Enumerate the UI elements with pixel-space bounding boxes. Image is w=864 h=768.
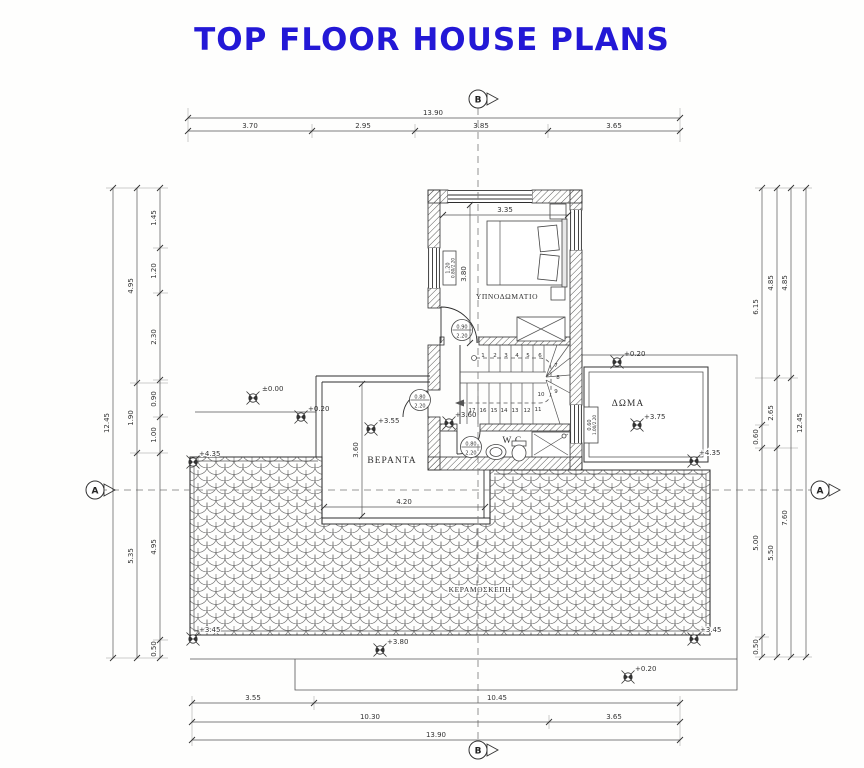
- dim-label: 13.90: [423, 109, 443, 117]
- stair-step-number: 13: [512, 408, 519, 414]
- level-label: +4.35: [699, 449, 720, 457]
- stair-step-number: 11: [535, 407, 542, 413]
- svg-text:A: A: [92, 487, 99, 497]
- dim-label: 1.00: [150, 427, 158, 443]
- dim-bottom: 3.55 10.45 10.30 3.65 13.90: [189, 694, 683, 743]
- window-label: 0.80/2.20: [451, 258, 456, 278]
- dim-label: 3.65: [606, 122, 622, 130]
- level-label: +4.35: [199, 450, 220, 458]
- dim-label: 0.90: [150, 391, 158, 407]
- stair-step-number: 15: [491, 408, 498, 414]
- nightstand: [551, 287, 565, 300]
- window-label: 1.00/2.20: [592, 415, 597, 435]
- dim-label: 4.20: [396, 498, 412, 506]
- bedroom-furniture: ΥΠΝΟΔΩΜΑΤΙΟ: [476, 204, 567, 341]
- level-label: +3.80: [387, 638, 408, 646]
- stair-step-number: 9: [554, 389, 558, 395]
- door-label: 0.80: [414, 395, 425, 401]
- stair-step-number: 3: [504, 353, 508, 359]
- dim-label: 3.60: [352, 442, 360, 458]
- level-label: +3.45: [199, 626, 220, 634]
- svg-text:B: B: [475, 96, 482, 106]
- stair-step-number: 5: [526, 353, 530, 359]
- svg-text:B: B: [475, 747, 482, 757]
- stair-step-number: 6: [538, 353, 542, 359]
- door-label: 2.20: [465, 451, 476, 457]
- section-marker-b-bottom: B: [469, 741, 498, 759]
- dim-top: 13.90 3.70 2.95 3.85 3.65: [185, 109, 683, 134]
- bedroom-left-window: 1.20 0.80/2.20: [428, 248, 456, 288]
- dim-label: 1.20: [150, 263, 158, 279]
- dim-label: 6.15: [752, 299, 760, 315]
- door-label: 0.90: [456, 325, 467, 331]
- dim-label: 1.90: [127, 410, 135, 426]
- dim-label: 3.65: [606, 713, 622, 721]
- nightstand: [550, 204, 566, 219]
- section-marker-a-left: A: [86, 481, 115, 499]
- roof-outline: [190, 457, 710, 635]
- veranda-door: 0.80 2.20: [403, 390, 431, 418]
- section-marker-b-top: B: [469, 90, 498, 108]
- dim-label: 3.80: [460, 266, 468, 282]
- level-label: +3.75: [644, 413, 665, 421]
- svg-text:A: A: [817, 487, 824, 497]
- stair-step-number: 1: [481, 353, 485, 359]
- dim-label: 4.85: [781, 275, 789, 291]
- room-label-roof-terrace: ΔΩΜΑ: [612, 399, 644, 409]
- level-label: ±0.00: [262, 385, 283, 393]
- section-marker-a-right: A: [811, 481, 840, 499]
- dim-label: 10.45: [487, 694, 507, 702]
- floor-plan-drawing: ΚΕΡΑΜΟΣΚΕΠΗ ΒΕΡΑΝΤΑ ΔΩΜΑ: [0, 0, 864, 768]
- dim-label: 4.95: [150, 539, 158, 555]
- pillow: [538, 254, 560, 281]
- dim-label: 3.55: [245, 694, 261, 702]
- dim-label: 13.90: [426, 731, 446, 739]
- shower: [532, 432, 570, 457]
- tiled-roof: ΚΕΡΑΜΟΣΚΕΠΗ: [190, 457, 710, 635]
- door-label: 2.20: [414, 404, 425, 410]
- dim-label: 5.35: [127, 548, 135, 564]
- stair-step-number: 8: [556, 375, 560, 381]
- level-label: +3.60: [455, 411, 476, 419]
- dim-label: 12.45: [103, 413, 111, 433]
- bedroom-door: 0.90 2.20: [441, 307, 477, 343]
- stair-step-number: 7: [554, 363, 558, 369]
- dim-label: 2.65: [767, 405, 775, 421]
- dim-label: 5.50: [767, 545, 775, 561]
- dim-label: 7.60: [781, 510, 789, 526]
- dim-label: 4.85: [767, 275, 775, 291]
- level-label: +3.45: [700, 626, 721, 634]
- dim-label: 12.45: [796, 413, 804, 433]
- stair-step-number: 14: [501, 408, 508, 414]
- stair-walkline: [455, 356, 551, 407]
- dim-label: 5.00: [752, 535, 760, 551]
- bedroom-top-window: [448, 190, 532, 203]
- dim-left: 12.45 4.95 1.90 5.35 1.45 1.20 2.30 0.90…: [103, 185, 163, 661]
- stair-step-number: 2: [493, 353, 497, 359]
- floor-plan-page: TOP FLOOR HOUSE PLANS: [0, 0, 864, 768]
- level-label: +0.20: [624, 350, 645, 358]
- room-label-tiled-roof: ΚΕΡΑΜΟΣΚΕΠΗ: [449, 585, 512, 594]
- room-label-veranda: ΒΕΡΑΝΤΑ: [367, 456, 416, 466]
- dim-label: 3.70: [242, 122, 258, 130]
- level-label: +0.20: [635, 665, 656, 673]
- dim-label: 4.95: [127, 278, 135, 294]
- stair-step-number: 4: [515, 353, 519, 359]
- bedroom-right-window: [570, 210, 582, 250]
- door-label: 0.80: [465, 442, 476, 448]
- dim-right: 6.15 0.60 5.00 0.50 4.85 2.65 5.50 4.85 …: [752, 185, 809, 660]
- level-label: +0.20: [308, 405, 329, 413]
- cabinet: [517, 317, 565, 341]
- dim-label: 0.50: [150, 641, 158, 657]
- level-label: +3.55: [378, 417, 399, 425]
- stair-step-number: 12: [524, 408, 531, 414]
- roof-room-window: 0.60 1.00/2.20: [570, 405, 598, 443]
- dim-label: 0.50: [752, 639, 760, 655]
- dim-label: 1.45: [150, 210, 158, 226]
- dim-label: 10.30: [360, 713, 380, 721]
- dim-label: 2.95: [355, 122, 371, 130]
- dim-label: 0.60: [752, 429, 760, 445]
- dim-label: 3.35: [497, 206, 513, 214]
- dim-label: 2.30: [150, 329, 158, 345]
- stair-step-number: 16: [480, 408, 487, 414]
- pillow: [538, 225, 560, 252]
- dim-label: 3.85: [473, 122, 489, 130]
- headboard: [562, 219, 567, 287]
- toilet: [512, 441, 526, 461]
- stair-step-number: 10: [538, 392, 545, 398]
- door-label: 2.20: [456, 334, 467, 340]
- room-label-bedroom: ΥΠΝΟΔΩΜΑΤΙΟ: [476, 292, 538, 301]
